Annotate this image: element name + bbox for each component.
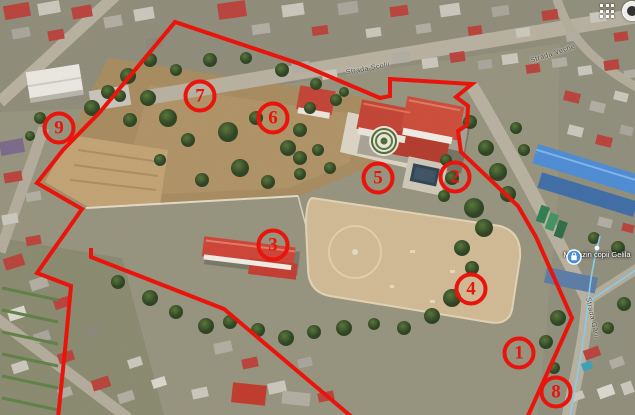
markers-layer: 123456789 (0, 0, 635, 415)
marker-5: 5 (362, 162, 395, 195)
marker-2: 2 (439, 161, 472, 194)
marker-9: 9 (43, 112, 76, 145)
apps-grid-icon[interactable] (600, 4, 615, 19)
marker-6: 6 (257, 102, 290, 135)
marker-1: 1 (503, 337, 536, 370)
marker-3: 3 (257, 229, 290, 262)
account-avatar[interactable] (622, 1, 635, 21)
marker-4: 4 (455, 273, 488, 306)
marker-7: 7 (184, 80, 217, 113)
map-canvas[interactable]: Strada ȘcoliiStrada VecheStrada Gării Ma… (0, 0, 635, 415)
marker-8: 8 (540, 376, 573, 409)
